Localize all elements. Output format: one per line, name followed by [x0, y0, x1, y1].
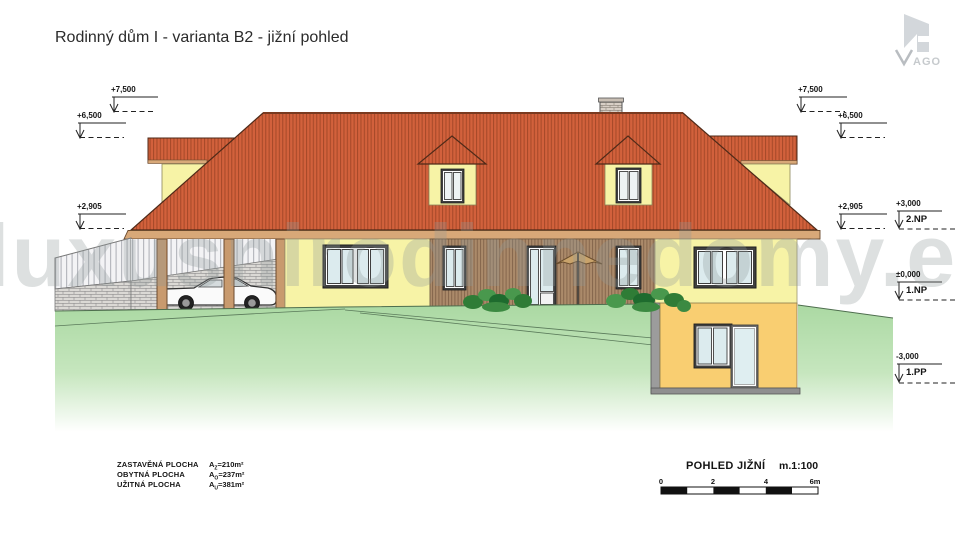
dormer-left-window: [441, 169, 464, 203]
elevation-right-2905: +2,905: [838, 202, 863, 211]
scale-bar: [661, 487, 818, 494]
watermark: luxusnirodinnedomy.eu: [0, 212, 960, 300]
dormer-right-window: [616, 168, 641, 203]
elevation-left-7500: +7,500: [111, 85, 136, 94]
basement-door: [731, 325, 758, 388]
basement-window: [694, 324, 732, 368]
logo-flag-shape: [904, 14, 929, 52]
logo-v-shape: [896, 50, 912, 64]
area-row-living-label: OBYTNÁ PLOCHA: [117, 470, 185, 479]
floor-label-1pp: 1.PP: [906, 367, 927, 378]
basement: [651, 303, 800, 394]
area-row-usable-value: AU=381m²: [209, 480, 244, 492]
logo-text: AGO: [913, 56, 941, 68]
elevation-right-7500: +7,500: [798, 85, 823, 94]
floor-label-1np: 1.NP: [906, 285, 927, 296]
vago-logo: AGO: [889, 12, 941, 68]
scalebar-tick-2: 2: [711, 477, 715, 486]
floor-label-2np: 2.NP: [906, 214, 927, 225]
elevation-1np-value: ±0,000: [896, 270, 920, 279]
area-row-built-label: ZASTAVĚNÁ PLOCHA: [117, 460, 199, 469]
page-title: Rodinný dům I - varianta B2 - jižní pohl…: [55, 29, 348, 47]
architectural-sheet: luxusnirodinnedomy.eu Rodinný dům I - va…: [0, 0, 960, 540]
area-row-usable-label: UŽITNÁ PLOCHA: [117, 480, 181, 489]
elevation-left-6500: +6,500: [77, 111, 102, 120]
basement-base: [651, 388, 800, 394]
elevation-left-2905: +2,905: [77, 202, 102, 211]
elevation-2np-value: +3,000: [896, 199, 921, 208]
view-scale: m.1:100: [779, 460, 818, 472]
scalebar-tick-0: 0: [659, 477, 663, 486]
view-title: POHLED JIŽNÍ: [686, 460, 765, 472]
elevation-1pp-value: -3,000: [896, 352, 919, 361]
scalebar-tick-6m: 6m: [810, 477, 821, 486]
scalebar-tick-4: 4: [764, 477, 768, 486]
elevation-right-6500: +6,500: [838, 111, 863, 120]
